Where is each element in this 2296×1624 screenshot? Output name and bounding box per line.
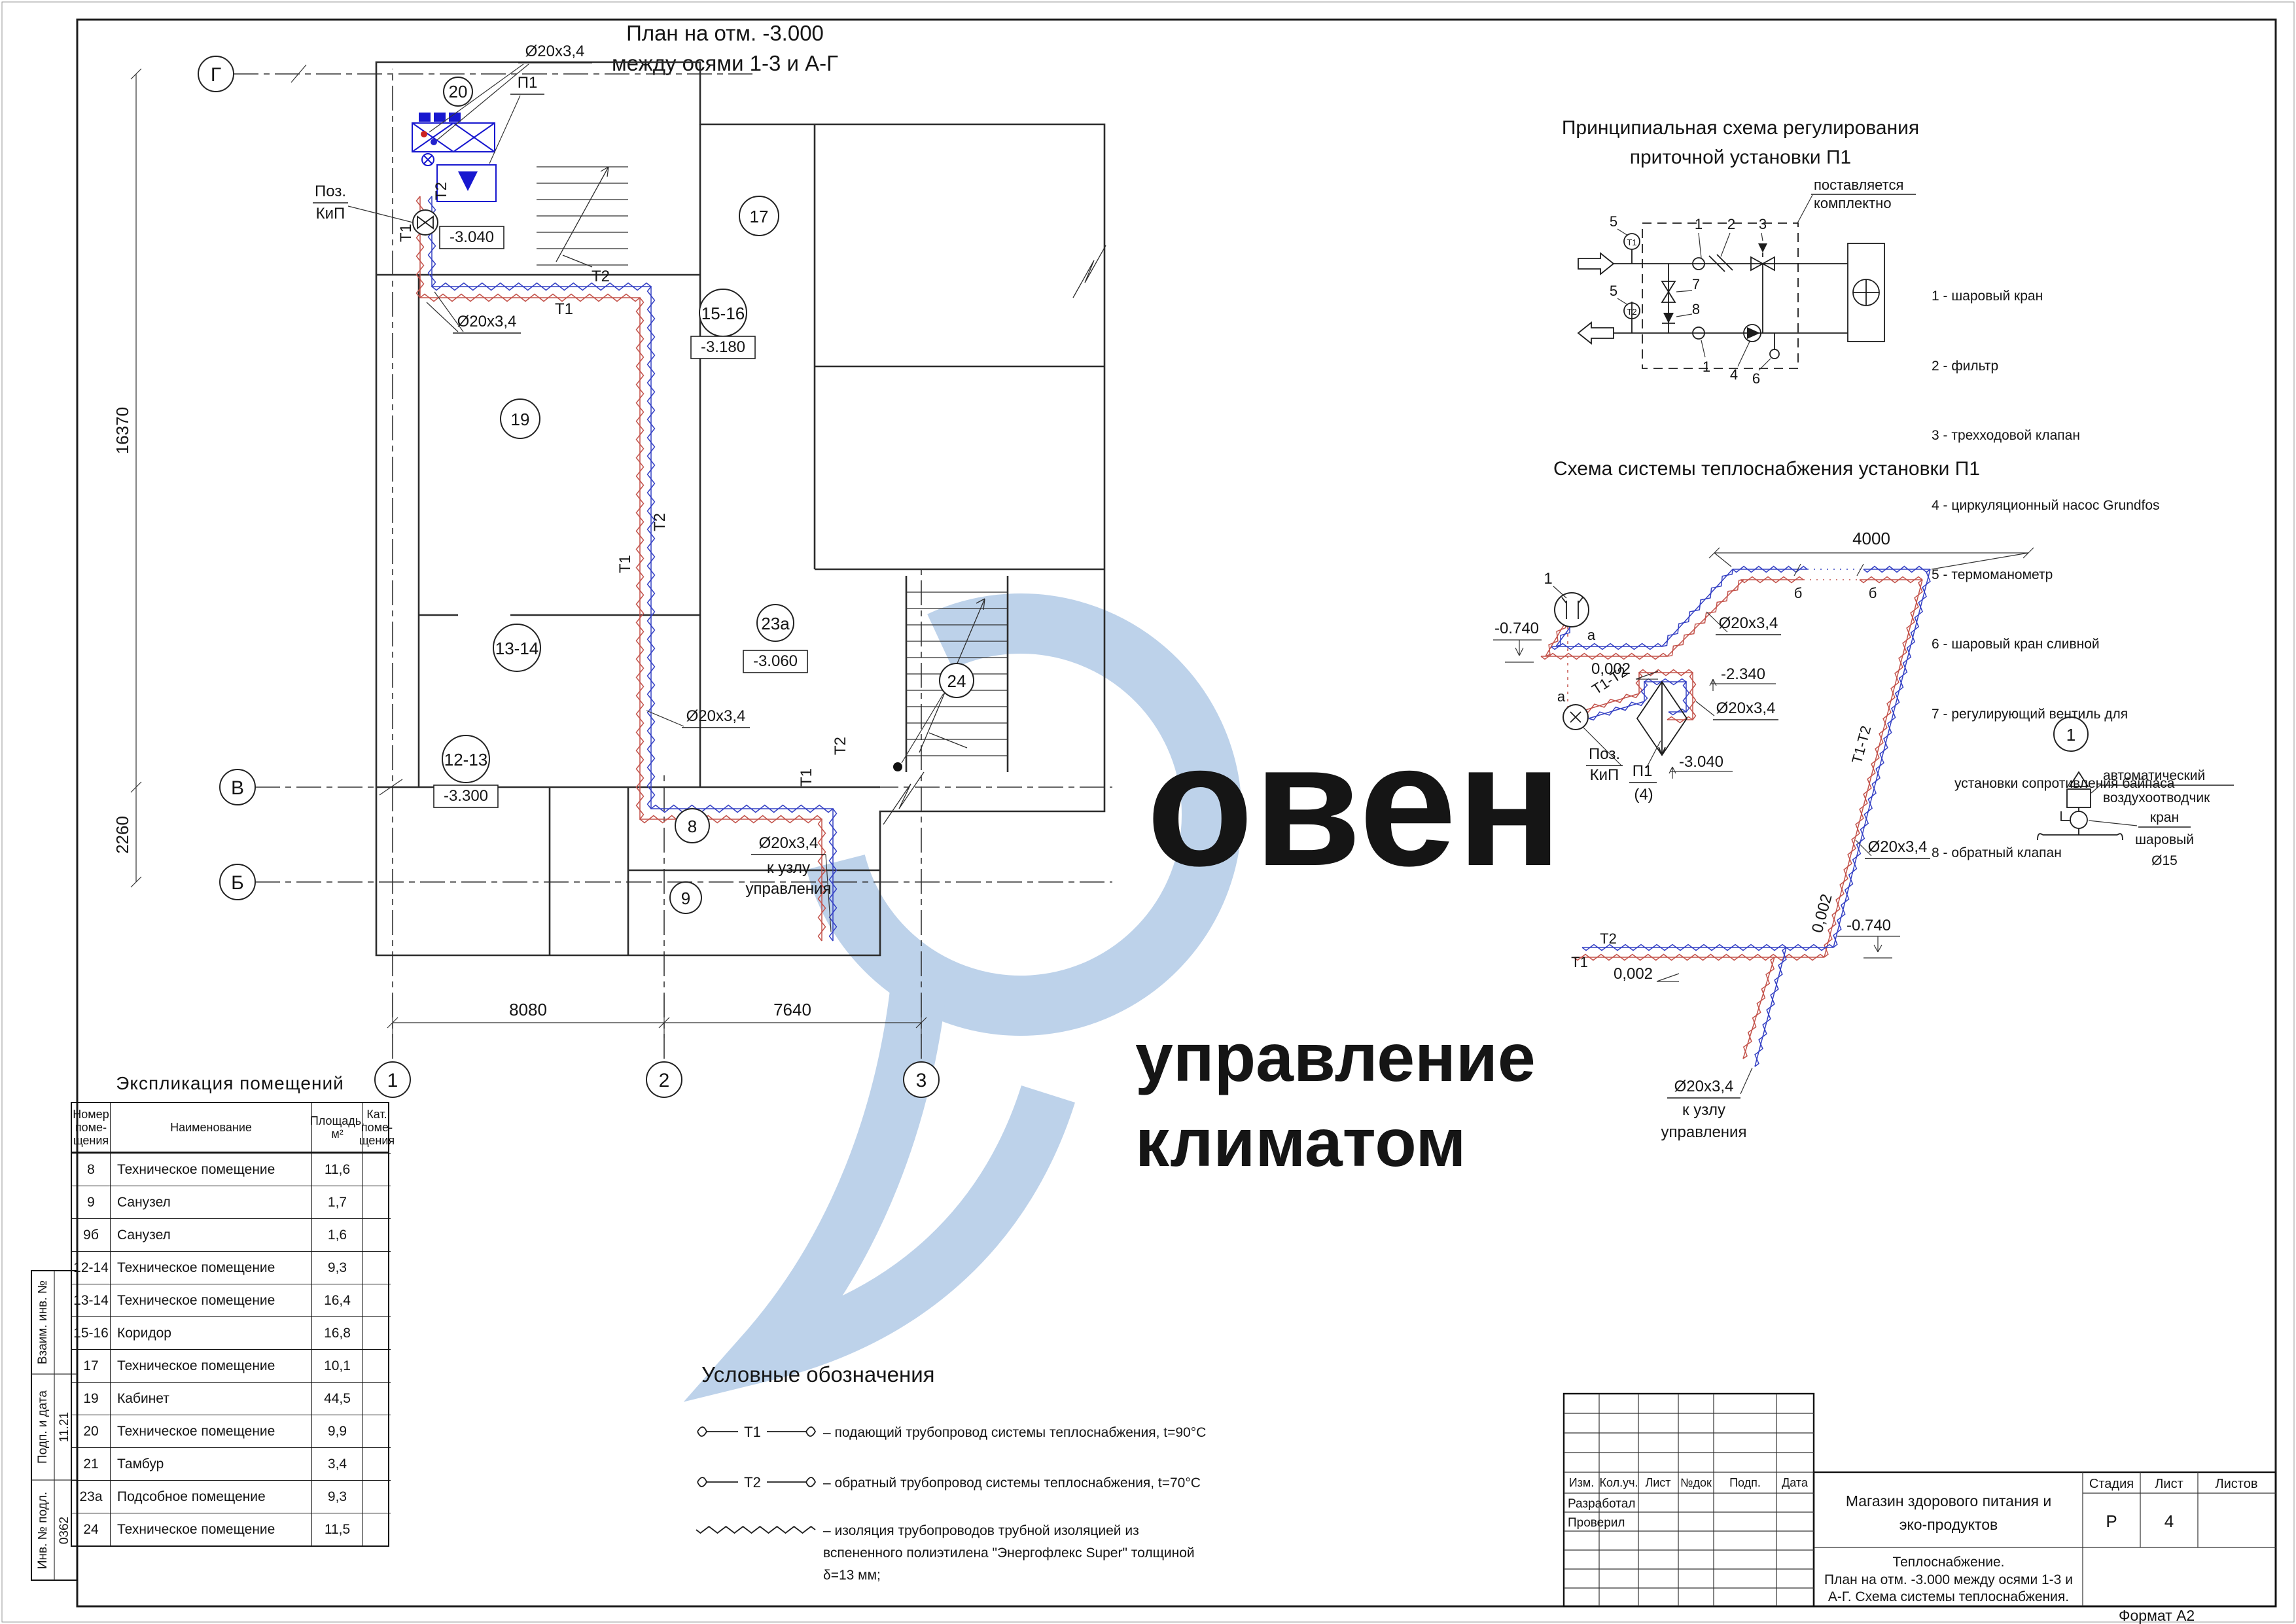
pipe-t2-v2: Т2: [651, 513, 669, 531]
schematic-legend-item: установки сопротивления байпаса: [1932, 775, 2174, 793]
scheme-poz-1: Поз.: [1589, 745, 1620, 763]
col-koluch: Кол.уч.: [1600, 1476, 1638, 1489]
dim-7640: 7640: [773, 1000, 811, 1019]
room-number-cell: 17: [72, 1349, 111, 1382]
room-name-cell: Кабинет: [111, 1382, 312, 1415]
scheme-level-0740b: -0.740: [1846, 917, 1891, 934]
doc-title-2: План на отм. -3.000 между осями 1-3 и: [1824, 1572, 2073, 1587]
legend-item-2: – обратный трубопровод системы теплоснаб…: [823, 1475, 1201, 1491]
axis-label-g: Г: [211, 64, 221, 86]
col-data: Дата: [1782, 1476, 1809, 1489]
schematic-title-1: Принципиальная схема регулирования: [1562, 117, 1919, 139]
room-name-cell: Техническое помещение: [111, 1251, 312, 1284]
callout-7: 7: [1692, 276, 1700, 292]
scheme-node-b2: б: [1869, 585, 1877, 601]
scheme-node-a2: а: [1557, 688, 1566, 705]
room-area-cell: 11,5: [312, 1513, 363, 1545]
supply-tap-dot: [421, 131, 427, 137]
room-category-cell: [363, 1284, 391, 1316]
scheme-node-b1: б: [1794, 585, 1803, 601]
callout-1a: 1: [1695, 216, 1703, 232]
pipe-t1-h1: Т1: [555, 300, 573, 318]
scheme-t1t2-diag: Т1-Т2: [1848, 724, 1874, 765]
table-row: 9б Санузел 1,6: [72, 1218, 388, 1251]
schematic-title-2: приточной установки П1: [1630, 147, 1852, 168]
room-9: 9: [681, 889, 690, 908]
supplied-note-1: поставляется: [1814, 177, 1903, 193]
scheme-to-node-2: управления: [1661, 1123, 1747, 1141]
scheme-to-node-dia: Ø20x3,4: [1674, 1078, 1734, 1095]
table-row: 15-16 Коридор 16,8: [72, 1316, 388, 1349]
pipe-segment: [1642, 679, 1689, 715]
pipe-segment: [696, 1527, 815, 1533]
room-12-13: 12-13: [444, 750, 488, 769]
explication-block: Экспликация помещений Номер поме- щения …: [71, 1073, 389, 1547]
room-area-cell: 9,9: [312, 1415, 363, 1447]
room-23a: 23а: [761, 614, 790, 633]
legend-item-3c: δ=13 мм;: [823, 1568, 881, 1583]
watermark-brand: овен: [1146, 706, 1563, 902]
schematic-legend-item: 8 - обратный клапан: [1932, 845, 2174, 862]
explication-rows: 8 Техническое помещение 11,6 9 Санузел 1…: [71, 1153, 389, 1547]
legend-item-1: – подающий трубопровод системы теплоснаб…: [823, 1425, 1206, 1440]
room-number-cell: 20: [72, 1415, 111, 1447]
row-checked: Проверил: [1568, 1516, 1625, 1530]
pipe-t1-v2: Т1: [616, 555, 634, 573]
legend-sym-t2: Т2: [744, 1474, 761, 1491]
callout-3: 3: [1759, 216, 1767, 232]
scheme-level-0740a: -0.740: [1494, 620, 1539, 637]
legend-item-3b: вспененного полиэтилена "Энергофлекс Sup…: [823, 1545, 1195, 1561]
table-row: 12-14 Техническое помещение 9,3: [72, 1251, 388, 1284]
level-3060: -3.060: [753, 652, 798, 670]
pipe-t2-v1: Т2: [433, 182, 450, 200]
watermark-logo-tail: [764, 987, 1048, 1353]
plan-title-line1: План на отм. -3.000: [626, 21, 824, 45]
header-room-category: Кат. поме- щения: [363, 1103, 391, 1152]
room-name-cell: Техническое помещение: [111, 1513, 312, 1545]
room-area-cell: 44,5: [312, 1382, 363, 1415]
margin-podp-data: Подп. и дата: [36, 1390, 50, 1464]
room-area-cell: 1,7: [312, 1186, 363, 1218]
room-category-cell: [363, 1251, 391, 1284]
margin-podp-data-value: 11.21: [58, 1412, 71, 1442]
col-izm: Изм.: [1569, 1476, 1595, 1489]
scheme-dia-3: Ø20x3,4: [1868, 838, 1928, 856]
table-row: 8 Техническое помещение 11,6: [72, 1153, 388, 1186]
room-name-cell: Санузел: [111, 1218, 312, 1251]
sheets-header: Листов: [2216, 1477, 2258, 1491]
title-block-headers: Изм. Кол.уч. Лист №док Подп. Дата: [1569, 1476, 1809, 1489]
room-category-cell: [363, 1513, 391, 1545]
room-number-cell: 24: [72, 1513, 111, 1545]
room-area-cell: 3,4: [312, 1447, 363, 1480]
room-category-cell: [363, 1447, 391, 1480]
room-name-cell: Техническое помещение: [111, 1284, 312, 1316]
room-name-cell: Подсобное помещение: [111, 1480, 312, 1513]
watermark: овен управление климатом: [764, 561, 1563, 1353]
schematic-legend-item: 1 - шаровый кран: [1932, 288, 2174, 306]
room-8: 8: [688, 817, 697, 836]
room-24-point: [893, 762, 902, 771]
pipe-segment: [1589, 701, 1644, 720]
room-category-cell: [363, 1349, 391, 1382]
scheme-to-node-1: к узлу: [1682, 1101, 1725, 1119]
schematic-legend-item: 4 - циркуляционный насос Grundfos: [1932, 497, 2174, 515]
scheme-dia-2: Ø20x3,4: [1716, 699, 1776, 717]
plan-title-line2: между осями 1-3 и А-Г: [612, 51, 838, 75]
dim-16370: 16370: [113, 407, 132, 454]
explication-header: Номер поме- щения Наименование Площадь, …: [71, 1102, 389, 1153]
table-row: 23а Подсобное помещение 9,3: [72, 1480, 388, 1513]
pipe-segment: [537, 167, 628, 265]
table-row: 24 Техническое помещение 11,5: [72, 1513, 388, 1545]
callout-5b: 5: [1610, 283, 1617, 299]
room-area-cell: 16,4: [312, 1284, 363, 1316]
scheme-t1-bar: Т1: [1571, 954, 1588, 970]
room-category-cell: [363, 1218, 391, 1251]
drawing-sheet: овен управление климатом План на отм. -3…: [0, 0, 2296, 1624]
axis-label-3: 3: [916, 1070, 927, 1091]
pipe-dia-label-top: Ø20x3,4: [525, 43, 585, 60]
level-3180: -3.180: [701, 338, 745, 356]
axis-label-b: Б: [231, 872, 244, 894]
doc-title-1: Теплоснабжение.: [1892, 1555, 2004, 1570]
schematic-legend-item: 5 - термоманометр: [1932, 567, 2174, 584]
room-number-cell: 9: [72, 1186, 111, 1218]
room-number-cell: 19: [72, 1382, 111, 1415]
stage-value: Р: [2106, 1511, 2117, 1531]
callout-8: 8: [1692, 301, 1700, 317]
schematic-legend-item: 3 - трехходовой клапан: [1932, 427, 2174, 445]
room-20: 20: [449, 82, 468, 101]
room-19: 19: [511, 410, 530, 429]
poz-kip-label-2: КиП: [316, 205, 345, 222]
watermark-tagline-2: климатом: [1135, 1105, 1466, 1181]
schematic-piping: [1578, 229, 1884, 370]
room-13-14: 13-14: [495, 639, 539, 658]
callout-6: 6: [1752, 370, 1760, 387]
format-note: Формат А2: [2119, 1607, 2195, 1624]
room-area-cell: 9,3: [312, 1251, 363, 1284]
room-category-cell: [363, 1480, 391, 1513]
scheme-p1: П1: [1633, 762, 1653, 780]
axis-label-2: 2: [659, 1070, 670, 1091]
thermo-t2: Т2: [1627, 307, 1636, 317]
axis-bubbles: Г В Б 1 2 3: [198, 56, 939, 1097]
col-list: Лист: [1645, 1476, 1670, 1489]
legend-item-3a: – изоляция трубопроводов трубной изоляци…: [823, 1523, 1139, 1538]
title-block: Изм. Кол.уч. Лист №док Подп. Дата Разраб…: [1564, 1394, 2276, 1606]
symbol-legend: Условные обозначения Т1 – подающий трубо…: [696, 1362, 1206, 1583]
row-developed: Разработал: [1568, 1497, 1635, 1511]
room-number-cell: 8: [72, 1153, 111, 1186]
pipe-t1-v3: Т1: [798, 768, 815, 786]
room-category-cell: [363, 1415, 391, 1447]
project-name-2: эко-продуктов: [1899, 1516, 1998, 1533]
room-category-cell: [363, 1316, 391, 1349]
room-17: 17: [750, 207, 769, 226]
supplied-note-2: комплектно: [1814, 195, 1892, 211]
margin-inv-value: 0362: [58, 1517, 71, 1544]
floor-plan: План на отм. -3.000 между осями 1-3 и А-…: [113, 21, 1112, 1097]
header-room-name: Наименование: [111, 1103, 312, 1152]
level-3300: -3.300: [444, 787, 488, 805]
unit-p1-label: П1: [518, 74, 538, 92]
pipe-to-node-1: к узлу: [767, 859, 810, 877]
pipe-to-node-dia: Ø20x3,4: [759, 834, 819, 852]
header-room-area: Площадь, м²: [312, 1103, 363, 1152]
dim-8080: 8080: [509, 1000, 547, 1019]
room-number-cell: 15-16: [72, 1316, 111, 1349]
schematic-legend: 1 - шаровый кран 2 - фильтр 3 - трехходо…: [1932, 219, 2174, 897]
room-area-cell: 16,8: [312, 1316, 363, 1349]
scheme-poz-2: КиП: [1590, 766, 1619, 784]
scheme-dim-4000: 4000: [1852, 529, 1890, 548]
callout-1b: 1: [1703, 359, 1710, 375]
watermark-tagline-1: управление: [1135, 1020, 1536, 1096]
level-3040: -3.040: [450, 228, 494, 246]
table-row: 21 Тамбур 3,4: [72, 1447, 388, 1480]
scheme-dia-1: Ø20x3,4: [1719, 614, 1778, 632]
scheme-node-a1: а: [1587, 627, 1596, 643]
room-number-cell: 21: [72, 1447, 111, 1480]
scheme-title: Схема системы теплоснабжения установки П…: [1553, 458, 1980, 480]
scheme-t2-bar: Т2: [1600, 930, 1617, 947]
stage-header: Стадия: [2089, 1477, 2134, 1491]
margin-inv: Инв. № подл.: [36, 1492, 50, 1569]
pipe-to-node-2: управления: [746, 880, 832, 898]
callout-5a: 5: [1610, 213, 1617, 230]
scheme-p1-count: (4): [1634, 786, 1653, 803]
plan-pipe-labels: Ø20x3,4 П1 Поз. КиП Т2 Т1 Ø20x3,4 Т2 Т1 …: [313, 43, 849, 932]
room-name-cell: Санузел: [111, 1186, 312, 1218]
pipe-dia-label-mid1: Ø20x3,4: [457, 313, 517, 330]
room-category-cell: [363, 1382, 391, 1415]
explication-title: Экспликация помещений: [71, 1073, 389, 1094]
axis-grid: [234, 65, 1112, 1059]
room-number-cell: 9б: [72, 1218, 111, 1251]
room-category-cell: [363, 1186, 391, 1218]
scheme-level-2340: -2.340: [1721, 665, 1765, 683]
axis-label-v: В: [231, 777, 244, 799]
scheme-callout-1: 1: [1544, 570, 1552, 588]
col-podp: Подп.: [1729, 1476, 1761, 1489]
legend-sym-insulation: [696, 1527, 815, 1533]
doc-title-3: А-Г. Схема системы теплоснабжения.: [1828, 1589, 2069, 1604]
pipe-dia-label-mid2: Ø20x3,4: [686, 707, 746, 725]
room-name-cell: Техническое помещение: [111, 1153, 312, 1186]
pipe-t2-v3: Т2: [832, 737, 849, 755]
room-number-cell: 12-14: [72, 1251, 111, 1284]
dim-2260: 2260: [113, 816, 132, 854]
sheet-value: 4: [2164, 1511, 2174, 1531]
pipe-t1-v1: Т1: [397, 224, 415, 242]
pipe-t2-h1: Т2: [592, 268, 610, 285]
table-row: 20 Техническое помещение 9,9: [72, 1415, 388, 1447]
legend-title: Условные обозначения: [701, 1362, 935, 1386]
callout-2: 2: [1727, 216, 1735, 232]
plan-walls: [376, 62, 1106, 955]
sheet-header: Лист: [2155, 1477, 2183, 1491]
room-number-cell: 23а: [72, 1480, 111, 1513]
kip-valve: [413, 210, 438, 235]
room-area-cell: 10,1: [312, 1349, 363, 1382]
table-row: 17 Техническое помещение 10,1: [72, 1349, 388, 1382]
room-area-cell: 9,3: [312, 1480, 363, 1513]
schematic-legend-item: 7 - регулирующий вентиль для: [1932, 706, 2174, 724]
room-name-cell: Техническое помещение: [111, 1349, 312, 1382]
room-area-cell: 11,6: [312, 1153, 363, 1186]
legend-sym-t1: Т1: [744, 1424, 761, 1440]
room-name-cell: Тамбур: [111, 1447, 312, 1480]
thermo-t1: Т1: [1627, 238, 1636, 247]
project-name-1: Магазин здорового питания и: [1846, 1492, 2051, 1509]
room-number-cell: 13-14: [72, 1284, 111, 1316]
room-15-16: 15-16: [701, 304, 745, 323]
stairs-top: [537, 167, 628, 267]
scheme-slope-2: 0,002: [1614, 965, 1653, 983]
return-tap-dot: [431, 139, 437, 145]
room-name-cell: Техническое помещение: [111, 1415, 312, 1447]
schematic-callouts: 5 5 1 2 3 7 8 1 4 6 Т1 Т2: [1610, 213, 1767, 387]
col-ndok: №док: [1680, 1476, 1712, 1489]
scheme-level-3040: -3.040: [1679, 753, 1723, 771]
table-row: 9 Санузел 1,7: [72, 1186, 388, 1218]
room-name-cell: Коридор: [111, 1316, 312, 1349]
callout-4: 4: [1730, 366, 1738, 383]
pipe-segment: [1545, 623, 1565, 656]
room-category-cell: [363, 1153, 391, 1186]
table-row: 19 Кабинет 44,5: [72, 1382, 388, 1415]
poz-kip-label-1: Поз.: [315, 183, 346, 200]
scheme-pipes: [1541, 567, 1930, 1067]
margin-vzaim: Взаим. инв. №: [36, 1280, 50, 1364]
control-schematic: Принципиальная схема регулирования прито…: [1562, 117, 1919, 387]
room-area-cell: 1,6: [312, 1218, 363, 1251]
schematic-legend-item: 6 - шаровый кран сливной: [1932, 636, 2174, 654]
table-row: 13-14 Техническое помещение 16,4: [72, 1284, 388, 1316]
schematic-legend-item: 2 - фильтр: [1932, 358, 2174, 376]
room-24: 24: [947, 671, 966, 691]
header-room-number: Номер поме- щения: [72, 1103, 111, 1152]
